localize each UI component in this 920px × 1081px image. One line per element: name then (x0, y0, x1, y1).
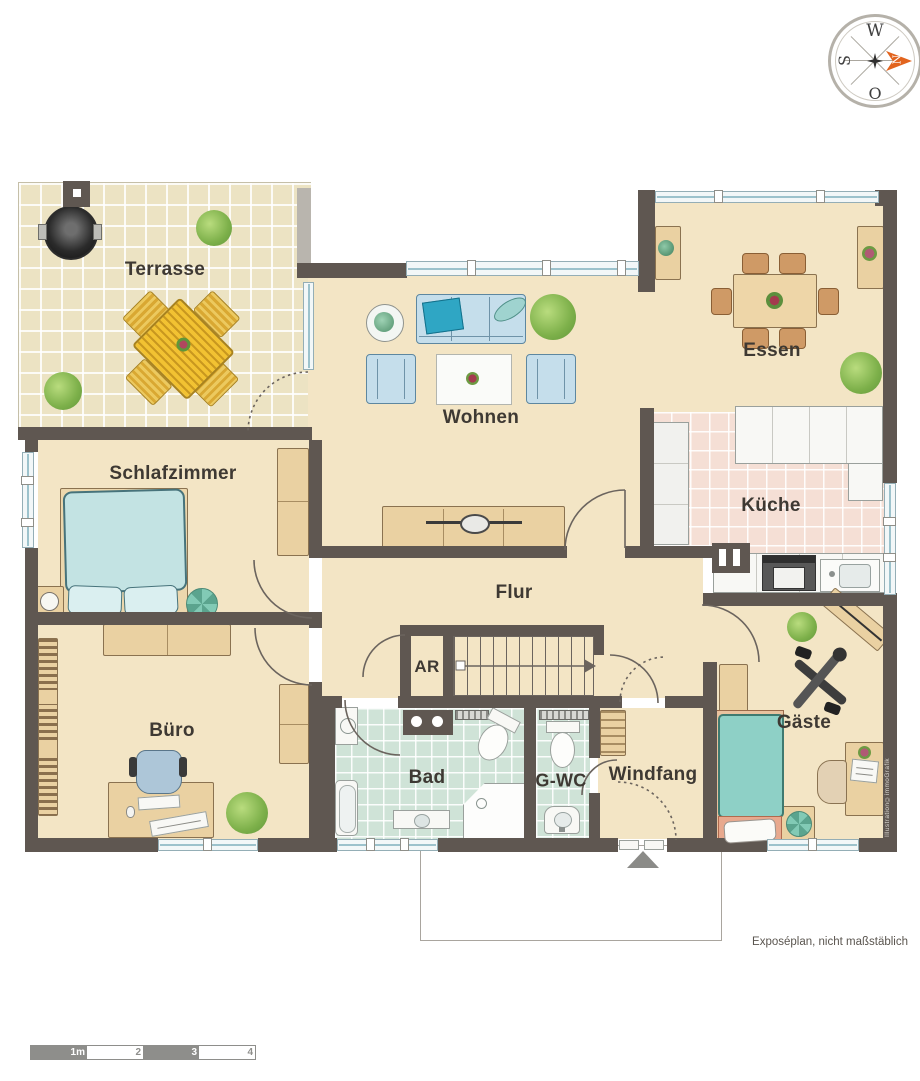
grill (44, 206, 98, 260)
compass-south: S (835, 55, 854, 66)
gaeste-desk-papers (850, 759, 879, 784)
armchair-left (366, 354, 416, 404)
desk-chair-armrest (129, 757, 137, 777)
kueche-counter-right (848, 463, 883, 501)
side-table-plant (374, 312, 394, 332)
wall-left-b (25, 548, 38, 852)
wall-bad-gwc (524, 708, 536, 838)
wall-stairs-right-stub (594, 636, 604, 655)
wall-wohnen-flur (322, 546, 567, 558)
floor-plan: Terrasse Wohnen Essen Küche Schlafzimmer… (0, 0, 920, 1081)
room-label-terrasse: Terrasse (125, 259, 205, 281)
nightstand-lamp (40, 592, 59, 611)
gwc-radiator (539, 710, 589, 720)
compass: W S O N (828, 14, 920, 108)
essen-plant (840, 352, 882, 394)
essen-sideboard-right-flower (862, 246, 877, 261)
wall-windfang-gaeste (703, 662, 717, 838)
room-label-kueche: Küche (741, 495, 801, 517)
wall-kueche-left (640, 408, 654, 558)
wall-essen-left (638, 190, 655, 292)
bed-duvet (63, 488, 188, 593)
gwc-sink (544, 806, 580, 834)
window-mullion (21, 476, 34, 485)
entrance-arrow (627, 851, 659, 868)
window-wohnen-top (406, 261, 639, 276)
compass-east: O (831, 84, 919, 103)
bathtub (335, 780, 358, 836)
front-door-panel-2 (644, 840, 664, 850)
compass-west: W (831, 21, 919, 41)
essen-sideboard-left-plant (658, 240, 674, 256)
window-essen-top (655, 191, 879, 203)
window-kueche-right (884, 483, 896, 595)
wall-left-a (25, 440, 38, 452)
bad-partition-dot (411, 716, 422, 727)
window-mullion (808, 838, 817, 851)
sofa-blanket (422, 298, 464, 335)
window-mullion (617, 260, 626, 276)
buero-sideboard (103, 624, 231, 656)
bad-vanity (393, 810, 450, 829)
grill-handle-left (38, 224, 47, 240)
scale-segment: 1m (31, 1046, 87, 1059)
wall-stairs-top (400, 625, 604, 636)
dining-chair (779, 253, 806, 274)
room-label-buero: Büro (149, 720, 195, 742)
room-label-schlafzimmer: Schlafzimmer (109, 463, 236, 485)
window-bad-bottom (337, 839, 438, 851)
wall-ar-left (400, 636, 411, 698)
wall-terrasse-bottom (18, 427, 312, 440)
wall-bad-top-a (322, 696, 342, 708)
gaeste-plant (787, 612, 817, 642)
room-label-wohnen: Wohnen (443, 407, 519, 429)
window-mullion (366, 838, 375, 851)
wall-gwc-right-b (589, 793, 600, 840)
kueche-cabinet-column (652, 422, 689, 545)
gaeste-chair (817, 760, 847, 804)
window-terrasse-door-side (303, 282, 314, 370)
watermark: Illustration©immoGrafik (884, 742, 896, 852)
window-mullion (714, 190, 723, 203)
room-label-essen: Essen (743, 340, 800, 362)
gaeste-doorway-floor (703, 605, 717, 663)
bookshelf (38, 638, 58, 816)
kitchen-sink (820, 559, 880, 592)
bad-partition-dot (432, 716, 443, 727)
bookshelf-gap (39, 742, 57, 756)
washing-machine (335, 707, 358, 745)
window-mullion (816, 190, 825, 203)
window-mullion (467, 260, 476, 276)
kueche-counter-top (735, 406, 883, 464)
wall-central-b (309, 612, 322, 628)
dining-table-flower (766, 292, 783, 309)
terrasse-plant-2 (44, 372, 82, 410)
essen-wohnen-passage-floor (640, 292, 656, 408)
front-door-panel-1 (619, 840, 639, 850)
desk-chair-armrest (179, 757, 187, 777)
wohnen-plant (530, 294, 576, 340)
wall-kueche-bottom (703, 593, 897, 606)
coffee-table-flower (466, 372, 479, 385)
windfang-shelf (600, 710, 626, 756)
wall-wohnen-top (297, 263, 407, 278)
scale-segment: 4 (199, 1046, 255, 1059)
tv-lens (460, 514, 490, 534)
staircase (453, 636, 594, 696)
terrasse-plant-1 (196, 210, 232, 246)
wall-gwc-right-a (589, 708, 600, 758)
gaeste-desk-flower (858, 746, 871, 759)
window-mullion (542, 260, 551, 276)
buero-cabinet (279, 684, 309, 764)
dining-chair (711, 288, 732, 315)
wall-bad-left (322, 708, 335, 838)
hatch-slot-2 (733, 549, 740, 566)
window-mullion (400, 838, 409, 851)
compass-north: N (890, 55, 903, 65)
terrasse-post-inner (73, 189, 81, 197)
wall-central-c (309, 682, 322, 852)
room-label-gwc: G-WC (535, 771, 586, 792)
wardrobe-schlafzimmer (277, 448, 309, 556)
window-schlafzimmer-left (22, 452, 34, 548)
wall-windfang-top-c (665, 696, 705, 708)
gaeste-bed-duvet (718, 714, 784, 818)
wall-bottom-b (258, 838, 337, 852)
porch-outline (420, 845, 722, 941)
wall-central-a (309, 440, 322, 558)
wall-kueche-hatch (712, 543, 750, 573)
buero-plant (226, 792, 268, 834)
mouse (126, 806, 135, 818)
gaeste-side-table-plant (786, 811, 812, 837)
room-label-gaeste: Gäste (777, 712, 831, 734)
wall-bad-top-b (398, 696, 622, 708)
wall-bottom-a (25, 838, 158, 852)
room-label-bad: Bad (409, 767, 446, 789)
room-label-flur: Flur (495, 582, 532, 604)
scale-segment: 3 (143, 1046, 199, 1059)
dining-chair (742, 253, 769, 274)
armchair-right (526, 354, 576, 404)
disclaimer-note: Exposéplan, nicht maßstäblich (608, 936, 908, 948)
gwc-toilet (546, 721, 578, 767)
wall-ar-stairs (443, 636, 453, 698)
grill-handle-right (93, 224, 102, 240)
gaeste-wardrobe (719, 664, 748, 716)
desk-chair (136, 750, 182, 794)
scale-segment: 2 (87, 1046, 143, 1059)
hatch-slot-1 (719, 549, 726, 566)
scale-bar: 1m 2 3 4 (30, 1045, 256, 1060)
window-mullion (883, 553, 896, 562)
window-mullion (883, 517, 896, 526)
dining-chair (818, 288, 839, 315)
wall-terrasse-right-gray (297, 188, 311, 265)
room-label-ar: AR (414, 657, 439, 677)
bookshelf-gap (39, 690, 57, 704)
wall-bottom-c (438, 838, 618, 852)
window-mullion (21, 518, 34, 527)
wall-right-upper (883, 190, 897, 483)
wall-schlaf-buero (25, 612, 309, 625)
window-mullion (203, 838, 212, 851)
wall-flur-kueche (625, 546, 715, 558)
room-label-windfang: Windfang (609, 764, 698, 786)
stove (762, 555, 816, 591)
